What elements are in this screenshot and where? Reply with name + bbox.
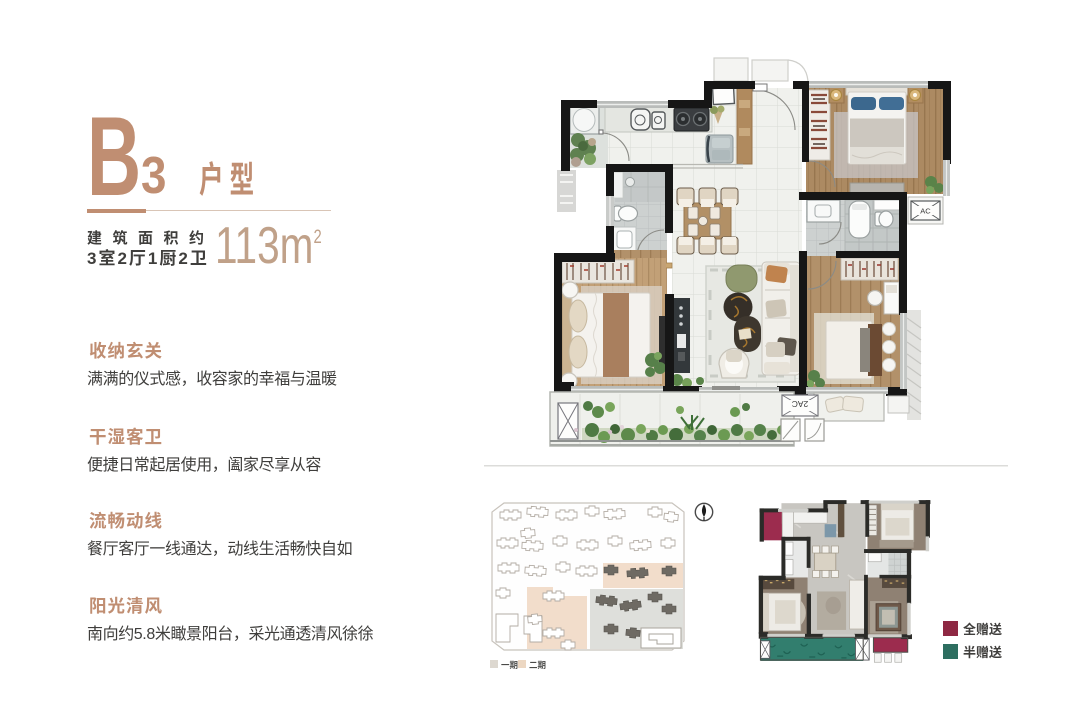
svg-text:全赠送: 全赠送 bbox=[963, 622, 1002, 637]
svg-text:一期: 一期 bbox=[501, 660, 518, 670]
svg-text:AC: AC bbox=[920, 207, 931, 216]
svg-text:半赠送: 半赠送 bbox=[963, 645, 1002, 660]
svg-text:二期: 二期 bbox=[529, 660, 546, 670]
svg-text:2AC: 2AC bbox=[792, 399, 809, 409]
